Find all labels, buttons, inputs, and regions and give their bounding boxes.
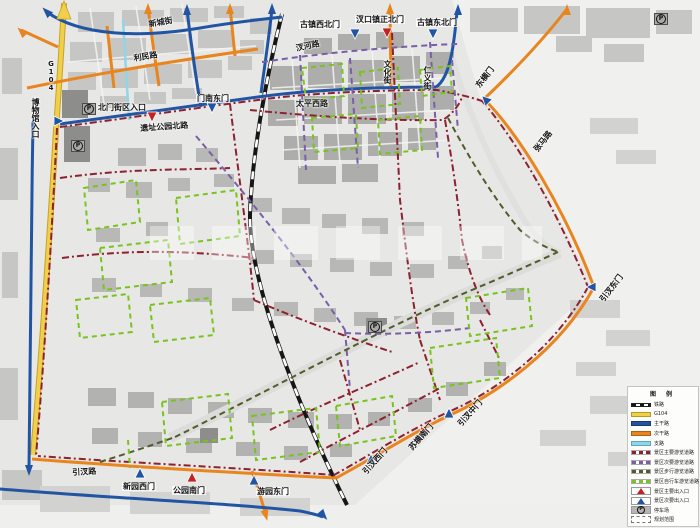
street-label-g104: G104 [46,60,55,92]
bike-tour-swatch [631,479,651,484]
map-page: P P P P 新城街 利民路 G104 汊河路 文化街 仁义街 太平西路 遗址… [0,0,700,528]
street-label-taiping-west: 太平西路 [296,99,328,108]
gate-label-old-town-northwest: 古镇西北门 [299,20,341,29]
parking-icon-museum: P [71,140,85,152]
legend-row-walk-tour: 景区步行游览道路 [631,467,695,477]
gate-label-xinyuan-west: 新园西门 [122,482,156,491]
boundary-swatch [631,516,651,523]
gate-label-north-block-entrance: 北门街区入口 [98,103,146,112]
street-label-renyi: 仁义街 [423,66,432,90]
legend-title: 图 例 [631,389,695,398]
legend-row-secondary-entrance: 景区次要出入口 [631,496,695,506]
legend-row-secondary-road: 次干路 [631,429,695,439]
parking-icon-northeast: P [654,13,668,25]
gate-label-youyuan-east: 游园东门 [256,487,290,496]
main-tour-swatch [631,450,651,455]
street-label-yincha: 引汊路 [72,467,96,477]
parking-icon: P [637,506,645,514]
legend-row-branch-road: 支路 [631,438,695,448]
secondary-road-swatch [631,431,651,436]
secondary-tour-swatch [631,460,651,465]
parking-icon-center: P [368,321,382,333]
gate-label-chakou-town-north: 汊口镇正北门 [355,15,405,24]
legend-row-main-tour: 景区主要游览道路 [631,448,695,458]
legend-row-secondary-tour: 景区次要游览道路 [631,458,695,468]
street-label-wenhua: 文化街 [383,60,392,84]
legend-row-railway: 铁路 [631,400,695,410]
parking-icon-north-block: P [82,103,96,115]
railway-swatch [631,403,651,407]
legend-row-bike-tour: 景区自行车游览道路 [631,477,695,487]
legend-row-boundary: 规划范围 [631,515,695,525]
gate-label-park-south: 公园南门 [172,486,206,495]
main-road-swatch [631,421,651,426]
branch-road-swatch [631,441,651,446]
legend-panel: 图 例 铁路 G104 主干路 次干路 支路 景区主要游览道路 景区次要游览道路… [627,386,699,527]
red-triangle-icon [637,488,645,494]
map-canvas [0,0,700,528]
legend-row-g104: G104 [631,410,695,420]
walk-tour-swatch [631,469,651,474]
legend-row-parking: P停车场 [631,506,695,516]
legend-row-main-entrance: 景区主要出入口 [631,486,695,496]
blue-triangle-icon [637,498,645,504]
gate-label-mennan-east: 门南东门 [196,94,230,103]
watermark [150,226,542,260]
gate-label-museum-entrance: 博物馆入口 [31,98,40,138]
main-entrance-swatch [631,487,651,495]
gate-label-old-town-northeast: 古镇东北门 [416,18,458,27]
g104-swatch [631,412,651,417]
parking-swatch: P [631,506,651,514]
secondary-entrance-swatch [631,497,651,505]
legend-row-main-road: 主干路 [631,419,695,429]
